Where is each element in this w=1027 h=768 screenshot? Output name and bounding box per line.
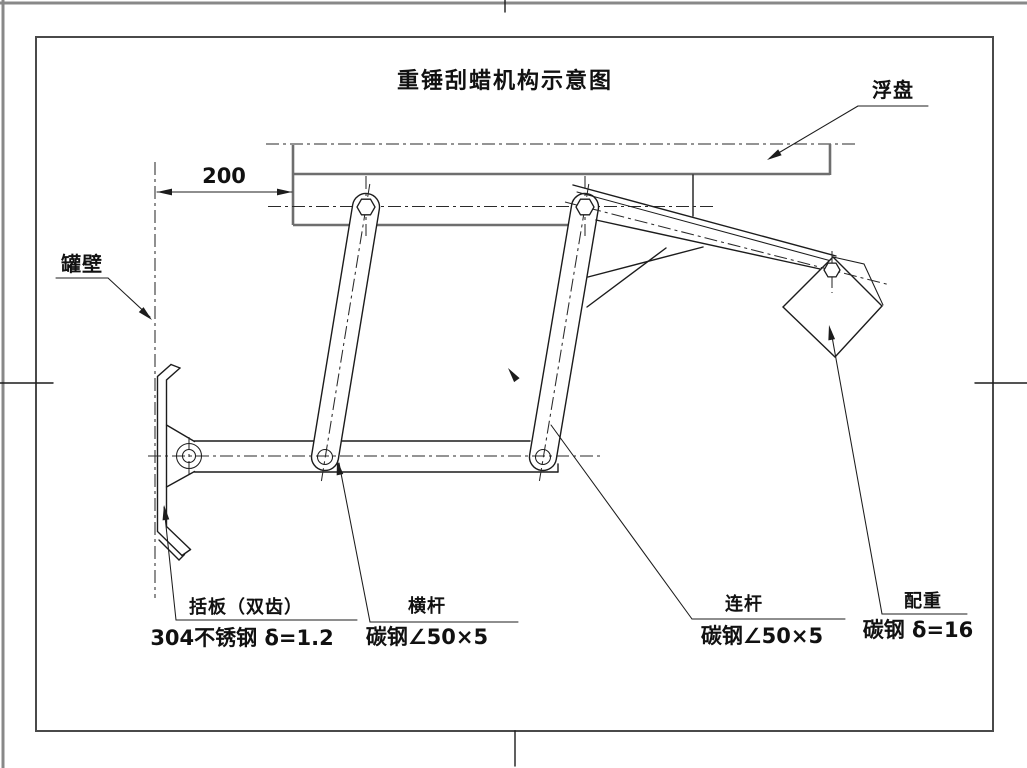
link-rod-arrow (505, 366, 519, 382)
pivot-c-hex-nut (576, 199, 594, 215)
link-rod-spec: 碳钢∠50×5 (701, 624, 823, 648)
scraper-leader (164, 507, 176, 620)
scraper-bottom-cap (182, 550, 191, 556)
cross-bar-label: 横杆 (408, 595, 446, 617)
scraper-outer-edge (158, 365, 183, 556)
counterweight-leader (831, 331, 882, 614)
float-disk-label: 浮盘 (872, 78, 914, 102)
float-disk-leader (770, 106, 858, 158)
float-disk-arrow (765, 149, 781, 163)
tank-wall-label: 罐壁 (60, 252, 103, 276)
leaders (56, 106, 967, 622)
scraper-inner-edge (167, 368, 191, 550)
counterweight-spec: 碳钢 δ=16 (863, 618, 974, 642)
pivots (177, 199, 841, 468)
arm-brace-lower (587, 248, 666, 307)
scraper-arrow (161, 505, 170, 521)
dimension-arrow-right (277, 189, 292, 196)
drawing-sheet: 重锤刮蜡机构示意图 200 (0, 0, 1027, 768)
link-rods (310, 191, 601, 472)
sheet-frame (0, 0, 1027, 768)
counterweight-label: 配重 (904, 590, 942, 612)
scraper-gusset-upper (167, 425, 195, 442)
scraper-top-cap (171, 365, 180, 369)
drawing-title: 重锤刮蜡机构示意图 (397, 68, 613, 94)
arm-top-edge (573, 185, 836, 256)
cross-bar-leader (339, 463, 370, 622)
counterweight-hex-nut (824, 263, 840, 277)
link-rod-label: 连杆 (725, 593, 763, 615)
arm-brace-upper (588, 247, 703, 277)
cad-canvas: 重锤刮蜡机构示意图 200 (0, 0, 1027, 768)
scraper-gusset-lower (167, 472, 195, 488)
scraper-label: 括板（双齿） (189, 596, 303, 618)
dimension-200: 200 (157, 164, 292, 195)
arm-flange-line (577, 192, 835, 262)
callout-texts: 罐壁 浮盘 括板（双齿） 304不锈钢 δ=1.2 横杆 碳钢∠50×5 连杆 … (60, 78, 973, 650)
pivot-a-hex-nut (357, 199, 375, 215)
scraper-spec: 304不锈钢 δ=1.2 (150, 626, 333, 650)
cross-bar-spec: 碳钢∠50×5 (366, 625, 488, 649)
dimension-arrow-left (157, 189, 172, 196)
link-rod-leader (551, 425, 692, 619)
dimension-value: 200 (202, 164, 246, 188)
centerlines (148, 176, 890, 481)
